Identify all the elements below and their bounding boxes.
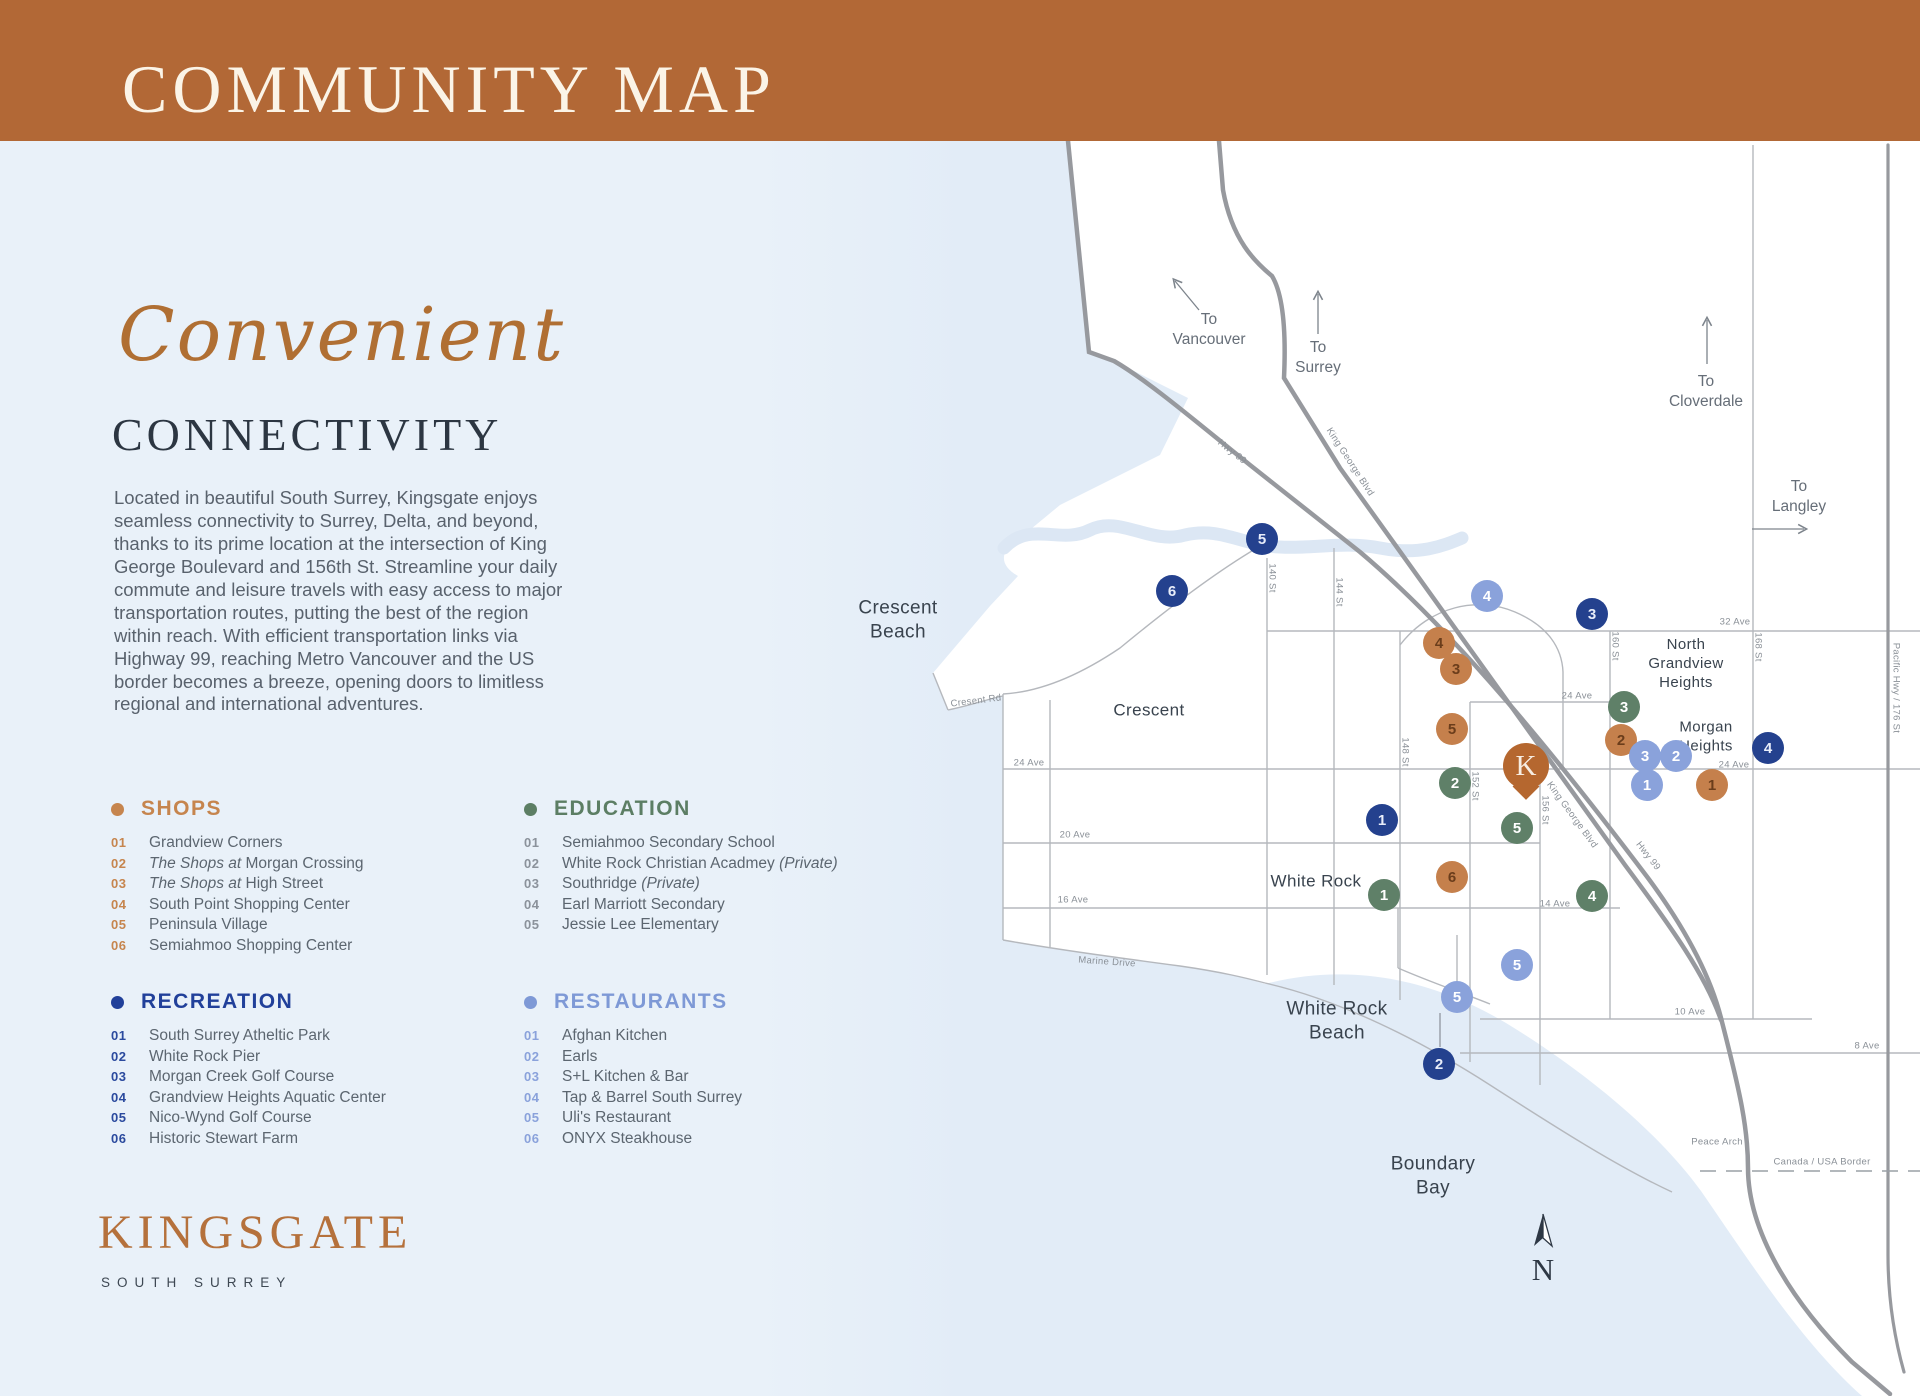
brand-logo: KINGSGATE [98, 1205, 412, 1260]
kingsgate-pin: K [1503, 743, 1549, 789]
brand-logo-subtitle: SOUTH SURREY [101, 1275, 292, 1290]
legend-item-number: 06 [524, 1131, 562, 1146]
legend-item-name: Grandview Corners [149, 834, 511, 852]
legend-item: 02White Rock Christian Acadmey (Private) [524, 855, 924, 873]
compass-north-label: N [1532, 1252, 1554, 1288]
legend-item-name: Earl Marriott Secondary [562, 896, 924, 914]
legend-section-label: RESTAURANTS [554, 990, 728, 1014]
legend-section-label: SHOPS [141, 797, 222, 821]
legend-section-label: RECREATION [141, 990, 293, 1014]
legend-item-name: Morgan Creek Golf Course [149, 1068, 511, 1086]
legend-item-name: Southridge (Private) [562, 875, 924, 893]
legend-bullet-icon [524, 996, 537, 1009]
legend-bullet-icon [111, 803, 124, 816]
legend-item-name: White Rock Pier [149, 1048, 511, 1066]
legend-item: 04Earl Marriott Secondary [524, 896, 924, 914]
legend-item-name: The Shops at Morgan Crossing [149, 855, 511, 873]
community-map-page: CrescentBeachCrescentWhite RockWhite Roc… [0, 0, 1920, 1396]
legend-item-number: 02 [111, 856, 149, 871]
legend-section-header: SHOPS [111, 797, 511, 821]
legend-item-number: 05 [524, 917, 562, 932]
legend-item-number: 02 [524, 856, 562, 871]
legend-item-name: Peninsula Village [149, 916, 511, 934]
legend-item-name: Afghan Kitchen [562, 1027, 924, 1045]
legend-item-number: 04 [111, 1090, 149, 1105]
legend-item-name: Uli's Restaurant [562, 1109, 924, 1127]
legend-item-number: 03 [111, 1069, 149, 1084]
legend-item: 02The Shops at Morgan Crossing [111, 855, 511, 873]
legend-items: 01Afghan Kitchen02Earls03S+L Kitchen & B… [524, 1027, 924, 1148]
legend-item-number: 05 [111, 1110, 149, 1125]
legend-section-header: EDUCATION [524, 797, 924, 821]
legend-section-restaurants: RESTAURANTS01Afghan Kitchen02Earls03S+L … [524, 990, 924, 1150]
legend-item: 06Historic Stewart Farm [111, 1130, 511, 1148]
legend-items: 01Semiahmoo Secondary School02White Rock… [524, 834, 924, 934]
legend-section-header: RESTAURANTS [524, 990, 924, 1014]
legend-item-name: Grandview Heights Aquatic Center [149, 1089, 511, 1107]
legend-item: 04Tap & Barrel South Surrey [524, 1089, 924, 1107]
legend-item-number: 05 [524, 1110, 562, 1125]
legend-item-name: Nico-Wynd Golf Course [149, 1109, 511, 1127]
legend-bullet-icon [111, 996, 124, 1009]
legend-item-number: 06 [111, 1131, 149, 1146]
script-heading: Convenient [118, 292, 565, 378]
legend-item-number: 01 [111, 1028, 149, 1043]
legend-item-number: 04 [524, 1090, 562, 1105]
connectivity-heading: CONNECTIVITY [112, 408, 502, 461]
legend-item-number: 02 [524, 1049, 562, 1064]
legend-item-number: 02 [111, 1049, 149, 1064]
legend-section-header: RECREATION [111, 990, 511, 1014]
legend-item-name: S+L Kitchen & Bar [562, 1068, 924, 1086]
legend-item: 03Morgan Creek Golf Course [111, 1068, 511, 1086]
legend-item: 01Grandview Corners [111, 834, 511, 852]
legend-item: 05Uli's Restaurant [524, 1109, 924, 1127]
legend-bullet-icon [524, 803, 537, 816]
legend-items: 01South Surrey Atheltic Park02White Rock… [111, 1027, 511, 1148]
legend-item-name: Tap & Barrel South Surrey [562, 1089, 924, 1107]
page-title: COMMUNITY MAP [122, 50, 776, 129]
legend-item-name: South Surrey Atheltic Park [149, 1027, 511, 1045]
kingsgate-pin-letter: K [1516, 750, 1537, 783]
legend-item: 03S+L Kitchen & Bar [524, 1068, 924, 1086]
legend-item-name: South Point Shopping Center [149, 896, 511, 914]
legend-item-number: 04 [111, 897, 149, 912]
legend-item-name: Semiahmoo Shopping Center [149, 937, 511, 955]
legend-item: 03Southridge (Private) [524, 875, 924, 893]
legend-section-label: EDUCATION [554, 797, 691, 821]
legend-item: 01Semiahmoo Secondary School [524, 834, 924, 852]
compass: N [1528, 1212, 1558, 1288]
legend-item-number: 05 [111, 917, 149, 932]
legend-item-number: 03 [111, 876, 149, 891]
legend-item-name: White Rock Christian Acadmey (Private) [562, 855, 924, 873]
legend-item: 01Afghan Kitchen [524, 1027, 924, 1045]
legend-item: 01South Surrey Atheltic Park [111, 1027, 511, 1045]
legend-item-number: 03 [524, 1069, 562, 1084]
legend-section-recreation: RECREATION01South Surrey Atheltic Park02… [111, 990, 511, 1150]
legend-item-number: 06 [111, 938, 149, 953]
header-band: COMMUNITY MAP [0, 0, 1920, 141]
legend-item-name: ONYX Steakhouse [562, 1130, 924, 1148]
legend-item-name: Jessie Lee Elementary [562, 916, 924, 934]
legend-items: 01Grandview Corners02The Shops at Morgan… [111, 834, 511, 955]
legend-item-name: Earls [562, 1048, 924, 1066]
north-arrow-icon [1528, 1212, 1558, 1250]
legend-item-number: 04 [524, 897, 562, 912]
legend-item: 03The Shops at High Street [111, 875, 511, 893]
legend-item: 04Grandview Heights Aquatic Center [111, 1089, 511, 1107]
legend-item: 04South Point Shopping Center [111, 896, 511, 914]
legend-item: 05Peninsula Village [111, 916, 511, 934]
legend-item-number: 03 [524, 876, 562, 891]
legend-section-education: EDUCATION01Semiahmoo Secondary School02W… [524, 797, 924, 937]
legend-item: 05Nico-Wynd Golf Course [111, 1109, 511, 1127]
legend-item: 02Earls [524, 1048, 924, 1066]
legend-item-number: 01 [111, 835, 149, 850]
legend-item: 06Semiahmoo Shopping Center [111, 937, 511, 955]
legend-item: 06ONYX Steakhouse [524, 1130, 924, 1148]
legend-item-number: 01 [524, 835, 562, 850]
legend-item-name: Semiahmoo Secondary School [562, 834, 924, 852]
legend-section-shops: SHOPS01Grandview Corners02The Shops at M… [111, 797, 511, 957]
legend-item-number: 01 [524, 1028, 562, 1043]
legend-item: 02White Rock Pier [111, 1048, 511, 1066]
legend-item-name: Historic Stewart Farm [149, 1130, 511, 1148]
intro-paragraph: Located in beautiful South Surrey, Kings… [114, 487, 566, 716]
legend-item: 05Jessie Lee Elementary [524, 916, 924, 934]
legend-item-name: The Shops at High Street [149, 875, 511, 893]
